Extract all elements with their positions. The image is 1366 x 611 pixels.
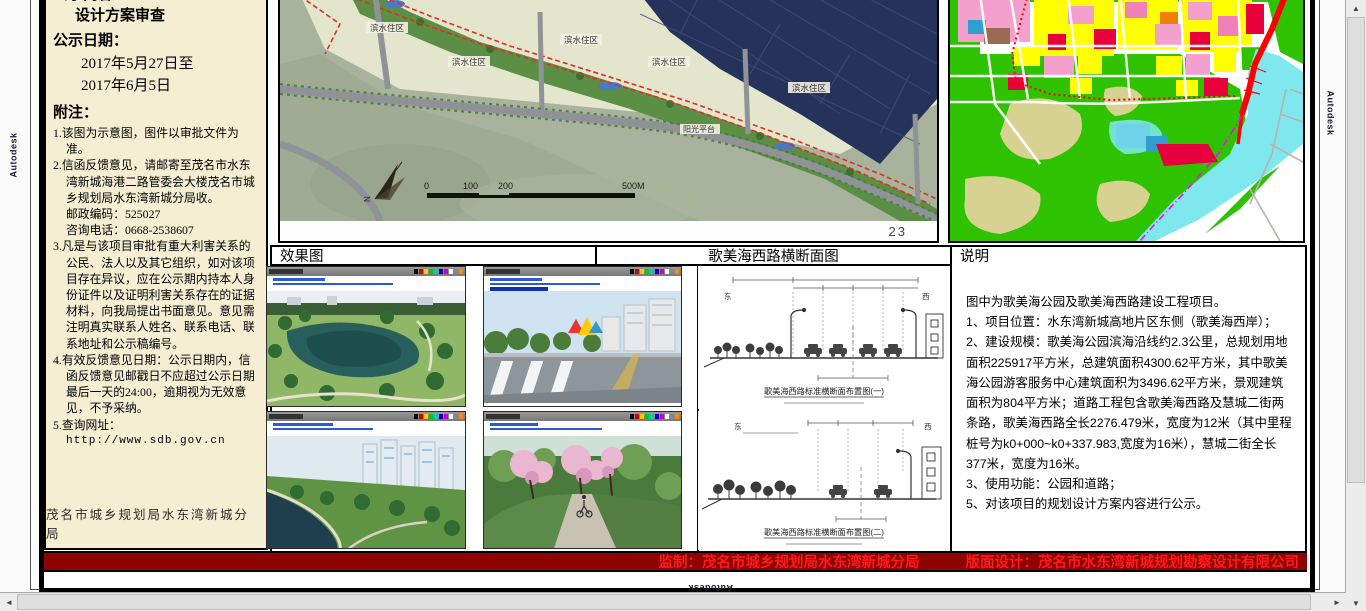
map-label-platform: 阳光平台 <box>680 124 720 134</box>
svg-text:500M: 500M <box>622 181 645 191</box>
autodesk-watermark-right: Autodesk <box>1326 90 1336 135</box>
rendering-street-view <box>483 266 682 407</box>
map-label-residential-1: 滨水住区 <box>366 22 408 33</box>
east-label: 东 <box>724 291 732 301</box>
project-description: 图中为歌美海公园及歌美海西路建设工程项目。 1、项目位置：水东湾新城高地片区东侧… <box>950 264 1307 551</box>
desc-item-publicity: 5、对该项目的规划设计方案内容进行公示。 <box>966 494 1292 514</box>
design-credit: 版面设计：茂名市水东湾新城规划勘察设计有限公司 <box>966 551 1300 572</box>
map-label-residential-3: 滨水住区 <box>560 34 602 45</box>
scroll-right-button[interactable]: ► <box>1328 594 1346 610</box>
svg-text:滨水住区: 滨水住区 <box>564 35 599 45</box>
desc-item-scale: 2、建设规模：歌美海公园滨海沿线约2.3公里，总规划用地面积225917平方米，… <box>966 332 1292 474</box>
supervisor-credit: 监制：茂名市城乡规划局水东湾新城分局 <box>659 551 920 572</box>
map-label-residential-4: 滨水住区 <box>648 56 690 67</box>
desc-item-function: 3、使用功能：公园和道路； <box>966 474 1292 494</box>
review-line: 设计方案审查 <box>75 6 259 26</box>
rendering-3-image <box>267 436 465 549</box>
note-5: 5.查询网址： <box>53 417 259 433</box>
note-1: 1.该图为示意图，图件以审批文件为准。 <box>53 125 259 157</box>
desc-intro: 图中为歌美海公园及歌美海西路建设工程项目。 <box>966 292 1292 312</box>
scroll-down-button[interactable]: ▼ <box>1347 595 1365 611</box>
viewer-canvas: 公示内容： 设计方案审查 公示日期： 2017年5月27日至 2017年6月5日… <box>0 0 1366 611</box>
cross-section-2-caption: 歌美海西路标准横断面布置图(二) <box>764 527 884 537</box>
section-header-description: 说明 <box>950 245 1307 266</box>
renderings-title: 效果图 <box>280 245 324 266</box>
desc-item-location: 1、项目位置：水东湾新城高地片区东侧（歌美海西岸）； <box>966 312 1292 332</box>
rendering-1-image <box>267 291 465 407</box>
horizontal-scroll-thumb[interactable] <box>17 594 1311 610</box>
site-plan-graphic: 滨水住区 滨水住区 滨水住区 滨水住区 滨水住区 <box>280 0 937 221</box>
color-palette-icon <box>630 269 679 274</box>
map-label-residential-2: 滨水住区 <box>448 56 490 67</box>
credits-banner: 监制：茂名市城乡规划局水东湾新城分局 版面设计：茂名市水东湾新城规划勘察设计有限… <box>44 551 1307 572</box>
notice-panel: 公示内容： 设计方案审查 公示日期： 2017年5月27日至 2017年6月5日… <box>44 0 268 550</box>
issuing-bureau: 茂名市城乡规划局水东湾新城分局 <box>46 504 256 542</box>
svg-text:200: 200 <box>498 181 513 191</box>
color-palette-icon <box>630 414 679 419</box>
west-label: 西 <box>922 292 930 301</box>
east-label: 东 <box>734 421 742 431</box>
rendering-caption-lines <box>267 421 465 436</box>
svg-text:滨水住区: 滨水住区 <box>370 23 405 33</box>
rendering-caption-lines <box>267 276 465 291</box>
zoning-location-map <box>948 0 1305 243</box>
scroll-left-button[interactable]: ◄ <box>0 594 18 610</box>
date-range-start: 2017年5月27日至 <box>81 53 259 75</box>
map-margin-strip: 23 <box>280 221 937 241</box>
svg-text:N: N <box>363 196 372 202</box>
horizontal-scrollbar[interactable]: ◄ ► <box>0 592 1346 611</box>
color-palette-icon <box>414 269 463 274</box>
zoning-map-graphic <box>950 0 1303 241</box>
rendering-window-bar <box>267 412 465 421</box>
cross-section-1: 东 西 <box>698 266 950 409</box>
rendering-window-bar <box>267 267 465 276</box>
section-header-cross-section: 歌美海西路横断面图 <box>595 245 952 266</box>
cross-section-title: 歌美海西路横断面图 <box>708 245 839 266</box>
note-2: 2.信函反馈意见，请邮寄至茂名市水东湾新城海港二路管委会大楼茂名市城乡规划局水东… <box>53 157 259 206</box>
map-label-residential-5: 滨水住区 <box>788 82 830 93</box>
svg-text:100: 100 <box>463 181 478 191</box>
svg-text:0: 0 <box>424 181 429 191</box>
svg-text:滨水住区: 滨水住区 <box>792 83 827 93</box>
vertical-scroll-thumb[interactable] <box>1347 17 1365 483</box>
autodesk-watermark-left: Autodesk <box>9 132 19 177</box>
section-header-renderings: 效果图 <box>270 245 597 266</box>
rendering-coast-aerial <box>266 411 466 549</box>
rendering-park-aerial <box>266 266 466 407</box>
vertical-scrollbar[interactable]: ▲ ▼ <box>1345 0 1366 611</box>
note-4: 4.有效反馈意见日期：公示日期内，信函反馈意见邮戳日不应超过公示日期最后一天的2… <box>53 352 259 417</box>
rendering-blossom-path <box>483 411 682 549</box>
svg-text:滨水住区: 滨水住区 <box>652 57 687 67</box>
rendering-2-image <box>484 291 681 403</box>
rendering-caption-lines <box>484 421 681 436</box>
note-3: 3.凡是与该项目审批有重大利害关系的公民、法人以及其它组织，如对该项目存在异议，… <box>53 238 259 351</box>
notes-label: 附注： <box>53 103 259 123</box>
sheet-number: 23 <box>889 224 907 239</box>
note-2-postcode: 邮政编码：525027 <box>53 206 259 222</box>
note-2-phone: 咨询电话：0668-2538607 <box>53 222 259 238</box>
rendering-4-image <box>484 436 681 548</box>
cross-section-2: 东 西 歌美海西路标准横断面布置图(二) <box>698 411 950 550</box>
date-label: 公示日期： <box>53 31 259 51</box>
svg-text:阳光平台: 阳光平台 <box>683 124 715 134</box>
site-plan-map: 滨水住区 滨水住区 滨水住区 滨水住区 滨水住区 <box>278 0 939 243</box>
rendering-caption-lines <box>484 276 681 291</box>
color-palette-icon <box>414 414 463 419</box>
notice-content-label: 公示内容： <box>53 0 259 5</box>
scroll-up-button[interactable]: ▲ <box>1347 0 1365 16</box>
rendering-window-bar <box>484 412 681 421</box>
svg-text:滨水住区: 滨水住区 <box>452 57 487 67</box>
cross-section-1-caption: 歌美海西路标准横断面布置图(一) <box>764 386 884 396</box>
rendering-window-bar <box>484 267 681 276</box>
note-5-url[interactable]: http://www.sdb.gov.cn <box>53 433 259 449</box>
date-range-end: 2017年6月5日 <box>81 75 259 97</box>
west-label: 西 <box>924 422 932 431</box>
description-title: 说明 <box>960 245 989 266</box>
